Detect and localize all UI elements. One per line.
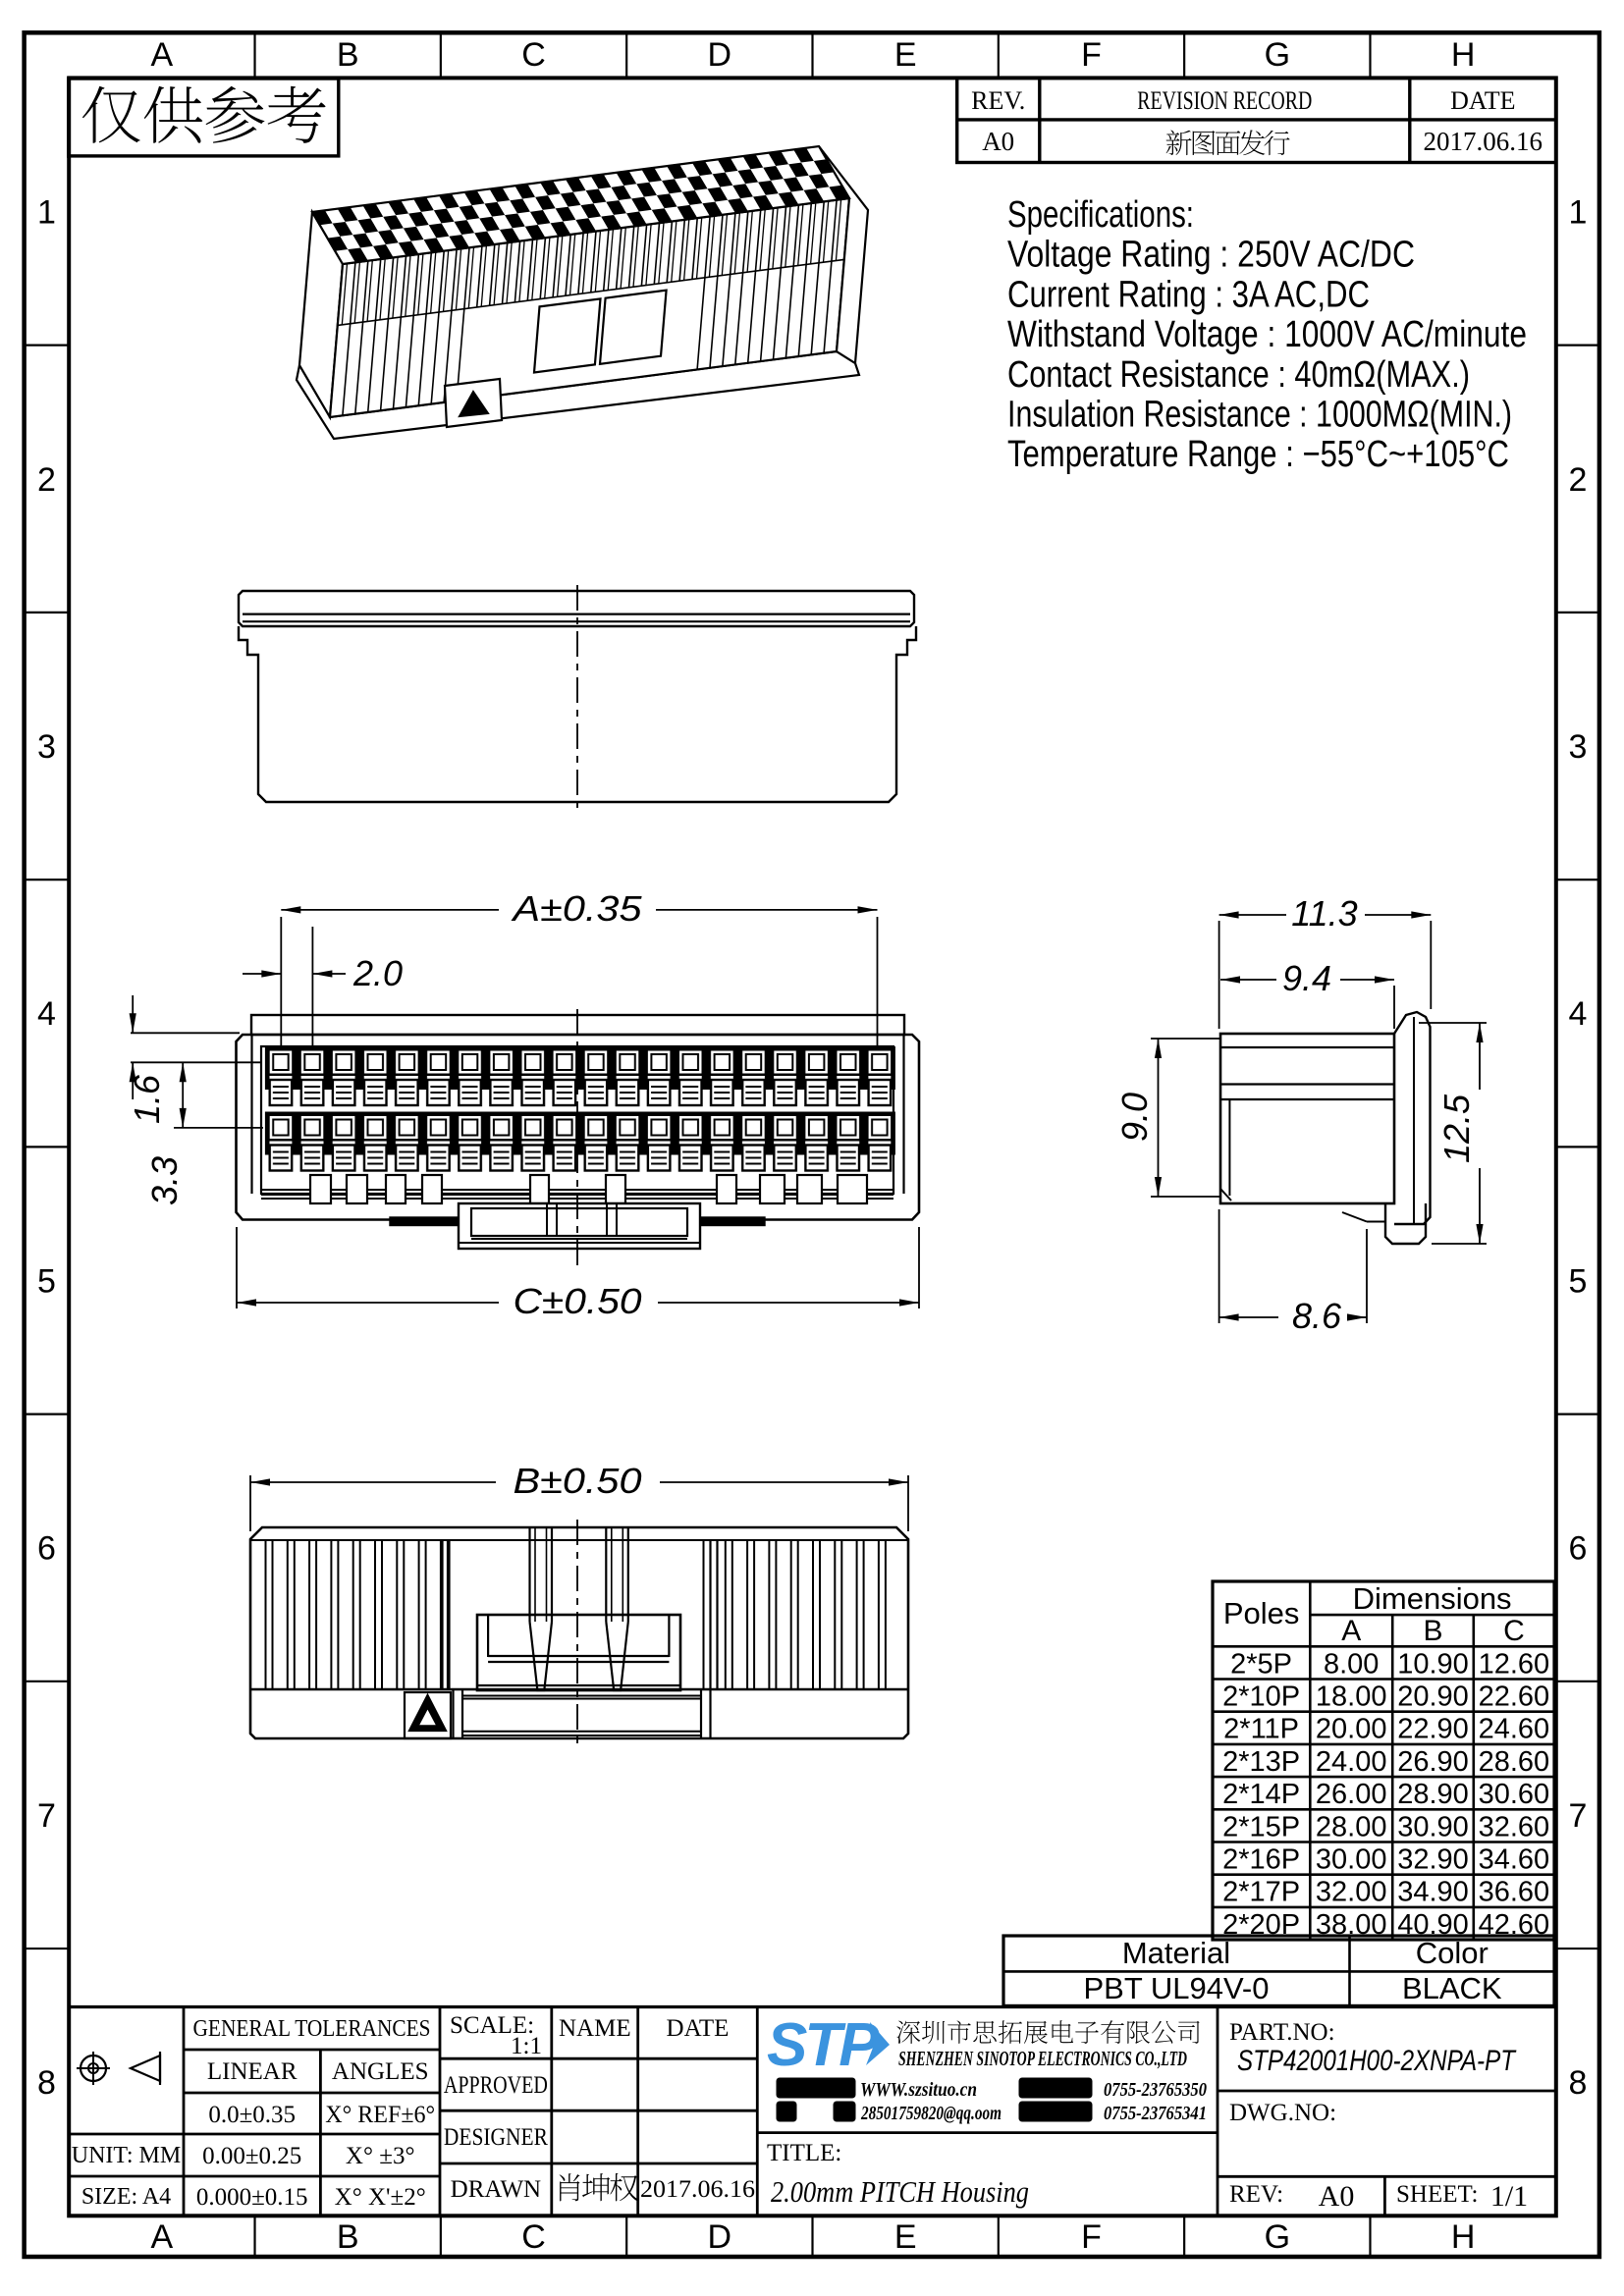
svg-text:32.60: 32.60 (1479, 1811, 1550, 1842)
svg-text:28.00: 28.00 (1316, 1811, 1387, 1842)
svg-text:6: 6 (37, 1530, 56, 1568)
svg-text:Current Rating : 3A AC,DC: Current Rating : 3A AC,DC (1007, 274, 1370, 315)
svg-text:3: 3 (37, 728, 56, 766)
svg-text:DWG.NO:: DWG.NO: (1229, 2100, 1336, 2126)
svg-text:7: 7 (37, 1797, 56, 1835)
svg-text:SHENZHEN SINOTOP ELECTRONICS C: SHENZHEN SINOTOP ELECTRONICS CO.,LTD (898, 2047, 1187, 2070)
svg-text:18.00: 18.00 (1316, 1682, 1387, 1713)
svg-text:NAME: NAME (559, 2015, 631, 2042)
svg-text:A0: A0 (1319, 2180, 1355, 2213)
svg-text:2*15P: 2*15P (1222, 1811, 1300, 1842)
svg-text:DESIGNER: DESIGNER (444, 2124, 548, 2151)
svg-text:Dimensions: Dimensions (1353, 1581, 1512, 1616)
svg-text:C: C (521, 36, 546, 74)
svg-text:2*10P: 2*10P (1222, 1682, 1300, 1713)
svg-text:1: 1 (37, 194, 56, 232)
svg-text:C: C (1503, 1615, 1525, 1647)
svg-text:8.00: 8.00 (1324, 1648, 1379, 1680)
svg-text:REV.: REV. (971, 86, 1025, 115)
svg-text:12.60: 12.60 (1479, 1648, 1550, 1680)
svg-text:24.00: 24.00 (1316, 1746, 1387, 1778)
svg-text:6: 6 (1568, 1530, 1587, 1568)
svg-text:34.60: 34.60 (1479, 1844, 1550, 1876)
svg-text:G: G (1265, 36, 1290, 74)
svg-text:2017.06.16: 2017.06.16 (640, 2176, 755, 2203)
svg-text:B: B (1423, 1615, 1442, 1647)
svg-text:5: 5 (1568, 1262, 1587, 1300)
svg-text:F: F (1081, 36, 1102, 74)
svg-text:D: D (708, 2218, 732, 2256)
svg-text:1.6: 1.6 (127, 1074, 167, 1124)
svg-text:22.90: 22.90 (1397, 1714, 1469, 1745)
svg-text:WWW.szsituo.cn: WWW.szsituo.cn (860, 2079, 977, 2101)
svg-text:30.90: 30.90 (1397, 1811, 1469, 1842)
svg-text:2*16P: 2*16P (1222, 1844, 1300, 1876)
svg-text:36.60: 36.60 (1479, 1877, 1550, 1908)
svg-text:X° X'±2°: X° X'±2° (335, 2184, 426, 2211)
svg-text:A: A (151, 36, 174, 74)
svg-text:0755-23765350: 0755-23765350 (1104, 2079, 1207, 2101)
svg-text:0755-23765341: 0755-23765341 (1104, 2103, 1207, 2124)
svg-text:C±0.50: C±0.50 (514, 1281, 642, 1321)
svg-text:SHEET:: SHEET: (1396, 2181, 1478, 2208)
svg-text:3: 3 (1568, 728, 1587, 766)
svg-text:10.90: 10.90 (1397, 1648, 1469, 1680)
svg-text:2017.06.16: 2017.06.16 (1424, 127, 1543, 156)
svg-text:34.90: 34.90 (1397, 1877, 1469, 1908)
svg-text:Voltage Rating : 250V AC/D: Voltage Rating : 250V AC/DC (1007, 235, 1415, 276)
svg-text:2.00mm PITCH Housing: 2.00mm PITCH Housing (771, 2174, 1029, 2209)
svg-text:Temperature Range : −55°C~+: Temperature Range : −55°C~+105°C (1007, 434, 1509, 475)
svg-text:F: F (1081, 2218, 1102, 2256)
svg-text:REVISION RECORD: REVISION RECORD (1137, 86, 1312, 115)
svg-text:PART.NO:: PART.NO: (1229, 2019, 1335, 2046)
svg-text:DRAWN: DRAWN (451, 2176, 541, 2203)
svg-text:8: 8 (37, 2064, 56, 2102)
svg-text:32.00: 32.00 (1316, 1877, 1387, 1908)
svg-text:0.00±0.25: 0.00±0.25 (202, 2143, 301, 2169)
svg-text:STP: STP (767, 2011, 880, 2079)
svg-text:7: 7 (1568, 1797, 1587, 1835)
svg-text:2: 2 (37, 461, 56, 499)
svg-text:20.90: 20.90 (1397, 1682, 1469, 1713)
svg-text:ANGLES: ANGLES (332, 2058, 429, 2085)
svg-text:BLACK: BLACK (1402, 1971, 1502, 2005)
svg-text:2*14P: 2*14P (1222, 1779, 1300, 1810)
svg-text:B±0.50: B±0.50 (514, 1461, 642, 1501)
svg-text:LINEAR: LINEAR (207, 2058, 298, 2085)
svg-text:H: H (1451, 36, 1476, 74)
svg-text:8.6: 8.6 (1292, 1296, 1342, 1336)
svg-text:32.90: 32.90 (1397, 1844, 1469, 1876)
svg-text:2: 2 (1568, 461, 1587, 499)
svg-text:A0: A0 (982, 127, 1014, 156)
svg-text:Specifications:: Specifications: (1007, 194, 1194, 236)
svg-text:E: E (894, 36, 917, 74)
svg-text:4: 4 (37, 995, 56, 1033)
svg-text:26.00: 26.00 (1316, 1779, 1387, 1810)
svg-text:2*5P: 2*5P (1230, 1648, 1292, 1680)
svg-text:Contact Resistance : 40mΩ(M: Contact Resistance : 40mΩ(MAX.) (1007, 354, 1470, 396)
svg-text:H: H (1451, 2218, 1476, 2256)
svg-text:C: C (521, 2218, 546, 2256)
svg-text:STP42001H00-2XNPA-PT: STP42001H00-2XNPA-PT (1237, 2045, 1517, 2077)
svg-text:2*17P: 2*17P (1222, 1877, 1300, 1908)
svg-text:B: B (337, 36, 359, 74)
svg-text:2.0: 2.0 (352, 953, 403, 993)
svg-text:A: A (1341, 1615, 1361, 1647)
svg-text:28.90: 28.90 (1397, 1779, 1469, 1810)
svg-text:B: B (337, 2218, 359, 2256)
svg-text:A: A (151, 2218, 174, 2256)
svg-text:0.000±0.15: 0.000±0.15 (196, 2184, 308, 2211)
svg-text:Material: Material (1122, 1936, 1230, 1970)
svg-text:26.90: 26.90 (1397, 1746, 1469, 1778)
svg-text:1/1: 1/1 (1490, 2180, 1528, 2213)
svg-text:12.5: 12.5 (1436, 1094, 1477, 1163)
svg-text:Withstand Voltage : 1000V: Withstand Voltage : 1000V AC/minute (1007, 314, 1527, 355)
svg-text:A±0.35: A±0.35 (511, 888, 642, 929)
svg-text:1:1: 1:1 (511, 2033, 542, 2059)
svg-text:20.00: 20.00 (1316, 1714, 1387, 1745)
svg-text:3.3: 3.3 (144, 1156, 185, 1205)
svg-text:9.0: 9.0 (1114, 1093, 1155, 1142)
svg-text:DATE: DATE (1450, 86, 1515, 115)
svg-text:DATE: DATE (667, 2015, 730, 2042)
svg-text:UNIT: MM: UNIT: MM (72, 2143, 181, 2168)
svg-text:APPROVED: APPROVED (444, 2072, 548, 2099)
svg-text:X° ±3°: X° ±3° (346, 2143, 415, 2169)
svg-text:2*11P: 2*11P (1223, 1714, 1299, 1745)
svg-text:G: G (1265, 2218, 1290, 2256)
svg-text:2*13P: 2*13P (1222, 1746, 1300, 1778)
svg-text:0.0±0.35: 0.0±0.35 (208, 2102, 296, 2128)
svg-text:D: D (708, 36, 732, 74)
svg-text:Poles: Poles (1223, 1596, 1300, 1630)
svg-text:X° REF±6°: X° REF±6° (325, 2102, 435, 2128)
svg-text:28501759820@qq.oom: 28501759820@qq.oom (860, 2103, 1001, 2124)
svg-text:11.3: 11.3 (1291, 893, 1357, 934)
svg-text:4: 4 (1568, 995, 1587, 1033)
svg-text:TITLE:: TITLE: (767, 2140, 841, 2166)
svg-text:E: E (894, 2218, 917, 2256)
svg-text:9.4: 9.4 (1282, 958, 1331, 998)
svg-text:28.60: 28.60 (1479, 1746, 1550, 1778)
svg-text:30.60: 30.60 (1479, 1779, 1550, 1810)
svg-text:30.00: 30.00 (1316, 1844, 1387, 1876)
svg-text:Insulation Resistance : 100: Insulation Resistance : 1000MΩ(MIN.) (1007, 395, 1512, 436)
svg-text:Color: Color (1416, 1936, 1489, 1970)
svg-text:24.60: 24.60 (1479, 1714, 1550, 1745)
svg-text:22.60: 22.60 (1479, 1682, 1550, 1713)
svg-text:5: 5 (37, 1262, 56, 1300)
svg-text:8: 8 (1568, 2064, 1587, 2102)
svg-text:SIZE: A4: SIZE: A4 (81, 2184, 171, 2210)
svg-text:GENERAL TOLERANCES: GENERAL TOLERANCES (193, 2016, 431, 2042)
svg-text:REV:: REV: (1229, 2181, 1283, 2208)
svg-text:PBT UL94V-0: PBT UL94V-0 (1084, 1971, 1270, 2005)
svg-text:1: 1 (1568, 194, 1587, 232)
